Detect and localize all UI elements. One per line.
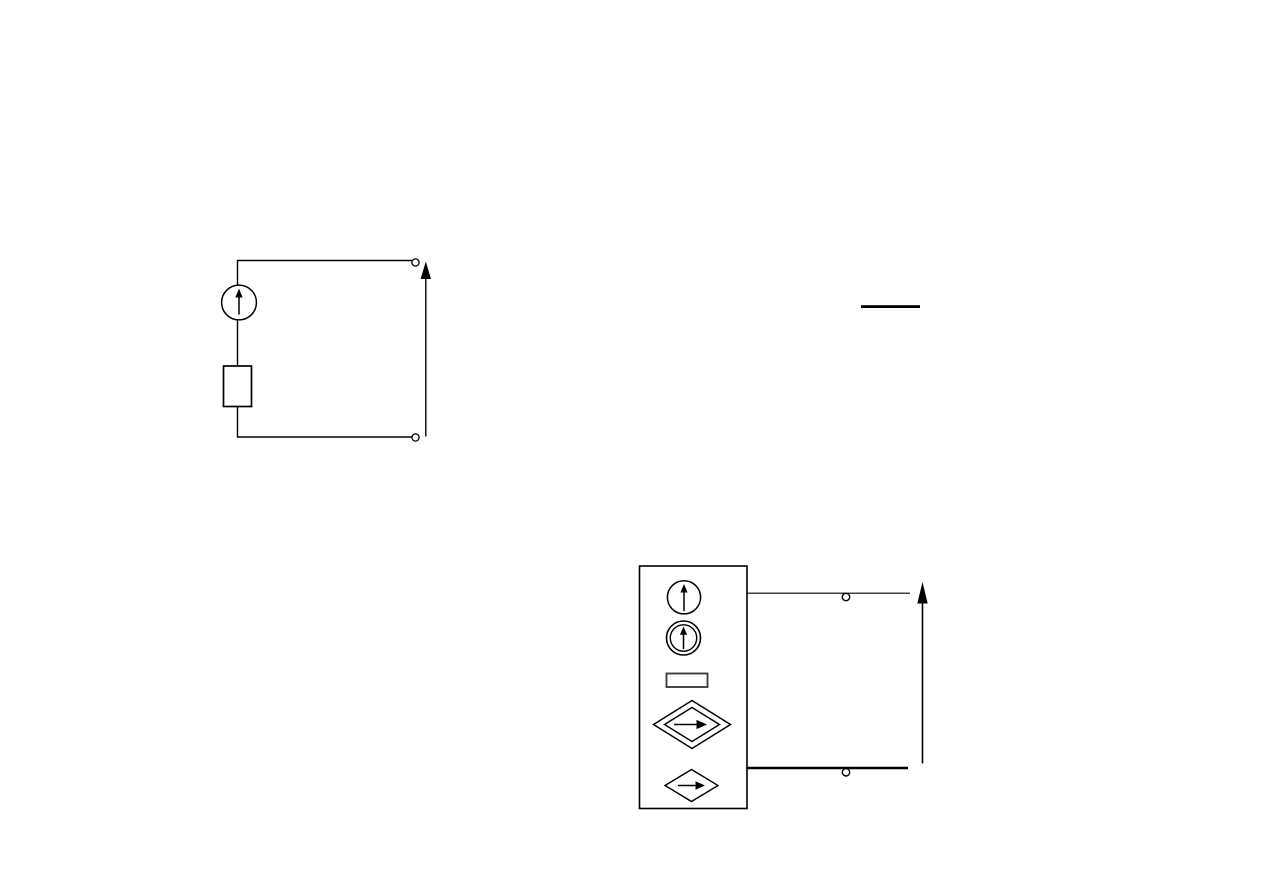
figure-source-symbols-box [640,566,928,809]
document-page [0,0,1263,893]
reference-arrow-head [421,262,431,280]
reference-arrow-head-2 [917,582,927,604]
reference-arrow-up [421,262,431,437]
schematic-canvas [0,0,1263,893]
terminal-bottom-2 [842,769,849,776]
terminal-top-2 [842,593,849,600]
circuit-loop-wire [238,261,413,438]
current-source-symbol [222,285,257,320]
terminal-top [412,259,419,266]
fraction-bar [861,305,920,308]
small-resistor-symbol [667,674,708,688]
reference-arrow-up-2 [917,582,927,764]
terminal-bottom [412,434,419,441]
resistor-symbol [224,366,252,407]
current-source-symbol-2 [667,581,700,614]
figure-current-source-circuit [222,259,431,441]
double-circle-source-symbol [667,621,701,655]
